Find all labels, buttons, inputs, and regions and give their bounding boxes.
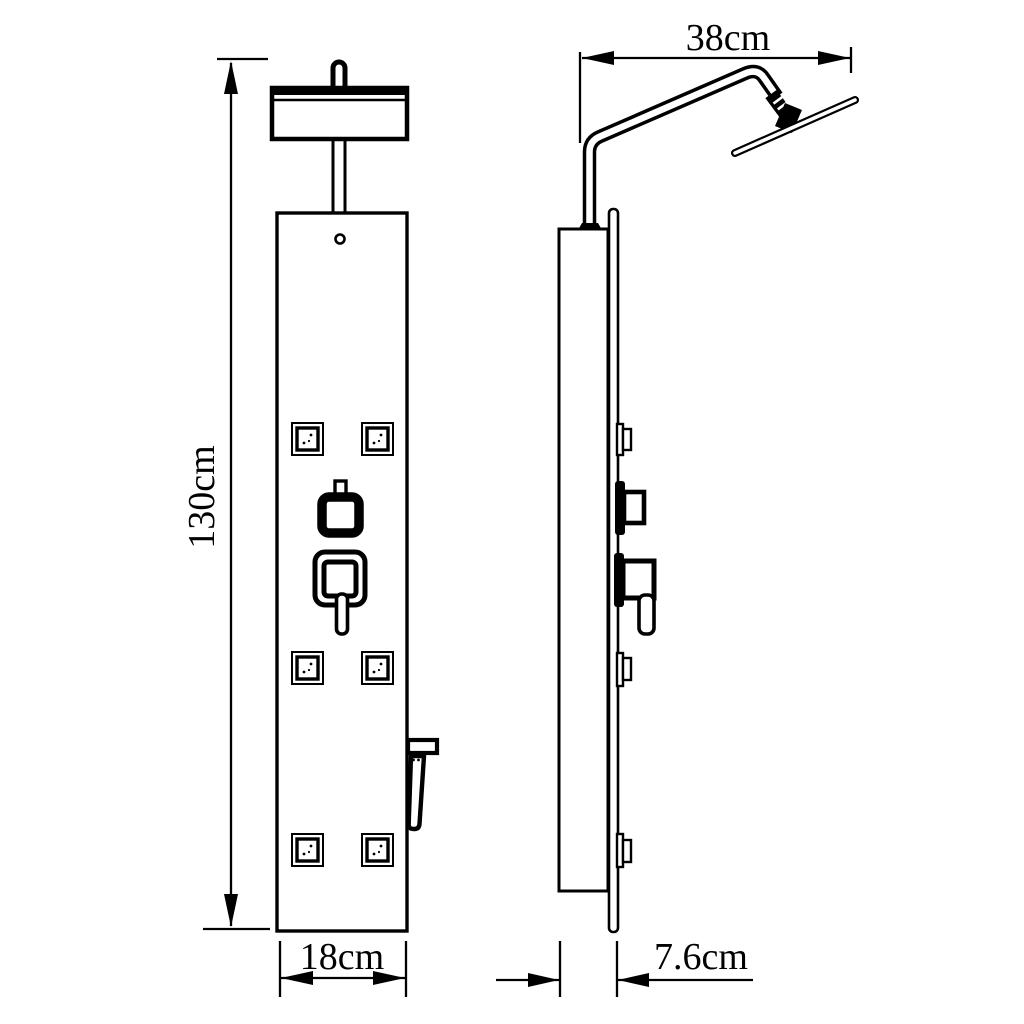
body-jet bbox=[362, 652, 393, 684]
hand-shower-front bbox=[408, 740, 437, 829]
rain-shower-head-front bbox=[270, 86, 409, 139]
arrowhead-up bbox=[224, 61, 238, 94]
hand-shower-bracket bbox=[408, 740, 437, 753]
body-jet bbox=[292, 652, 323, 684]
arm-reach-dimension-label: 38cm bbox=[686, 17, 770, 59]
arrowhead-right bbox=[818, 51, 850, 65]
front-view: 130cm bbox=[181, 59, 437, 997]
jet-side-tab bbox=[617, 834, 631, 867]
knob-body bbox=[322, 497, 359, 533]
mixer-lever-side bbox=[639, 595, 654, 634]
panel-body-side bbox=[559, 229, 608, 891]
depth-dimension-label: 7.6cm bbox=[654, 936, 748, 978]
mixer-lever-front bbox=[337, 594, 348, 634]
jet-side-tab bbox=[617, 424, 631, 455]
body-jet bbox=[362, 834, 393, 866]
shower-panel-dimension-drawing: 130cm bbox=[0, 0, 1024, 1024]
height-dimension-label: 130cm bbox=[181, 445, 223, 548]
arrowhead-right-pointing bbox=[528, 973, 559, 987]
body-jet bbox=[292, 423, 323, 455]
depth-dimension: 7.6cm bbox=[496, 936, 753, 997]
height-dimension: 130cm bbox=[181, 59, 270, 929]
width-dimension-label: 18cm bbox=[300, 936, 384, 978]
head-body bbox=[272, 88, 407, 139]
side-view: 38cm bbox=[496, 17, 855, 997]
head-drop-pipe-front bbox=[333, 139, 345, 213]
arrowhead-left-pointing bbox=[618, 973, 649, 987]
width-dimension: 18cm bbox=[280, 936, 406, 997]
diverter-knob-side bbox=[615, 481, 644, 535]
head-top-band bbox=[270, 86, 409, 95]
body-jet bbox=[362, 423, 393, 455]
arrowhead-down bbox=[224, 894, 238, 927]
mixer-control-side bbox=[614, 553, 654, 634]
body-jet bbox=[292, 834, 323, 866]
pilot-hole bbox=[336, 235, 345, 244]
mixer-inner bbox=[324, 562, 356, 596]
arrowhead-left bbox=[582, 51, 614, 65]
jet-side-tab bbox=[617, 653, 631, 686]
hand-shower-handle bbox=[409, 756, 424, 829]
